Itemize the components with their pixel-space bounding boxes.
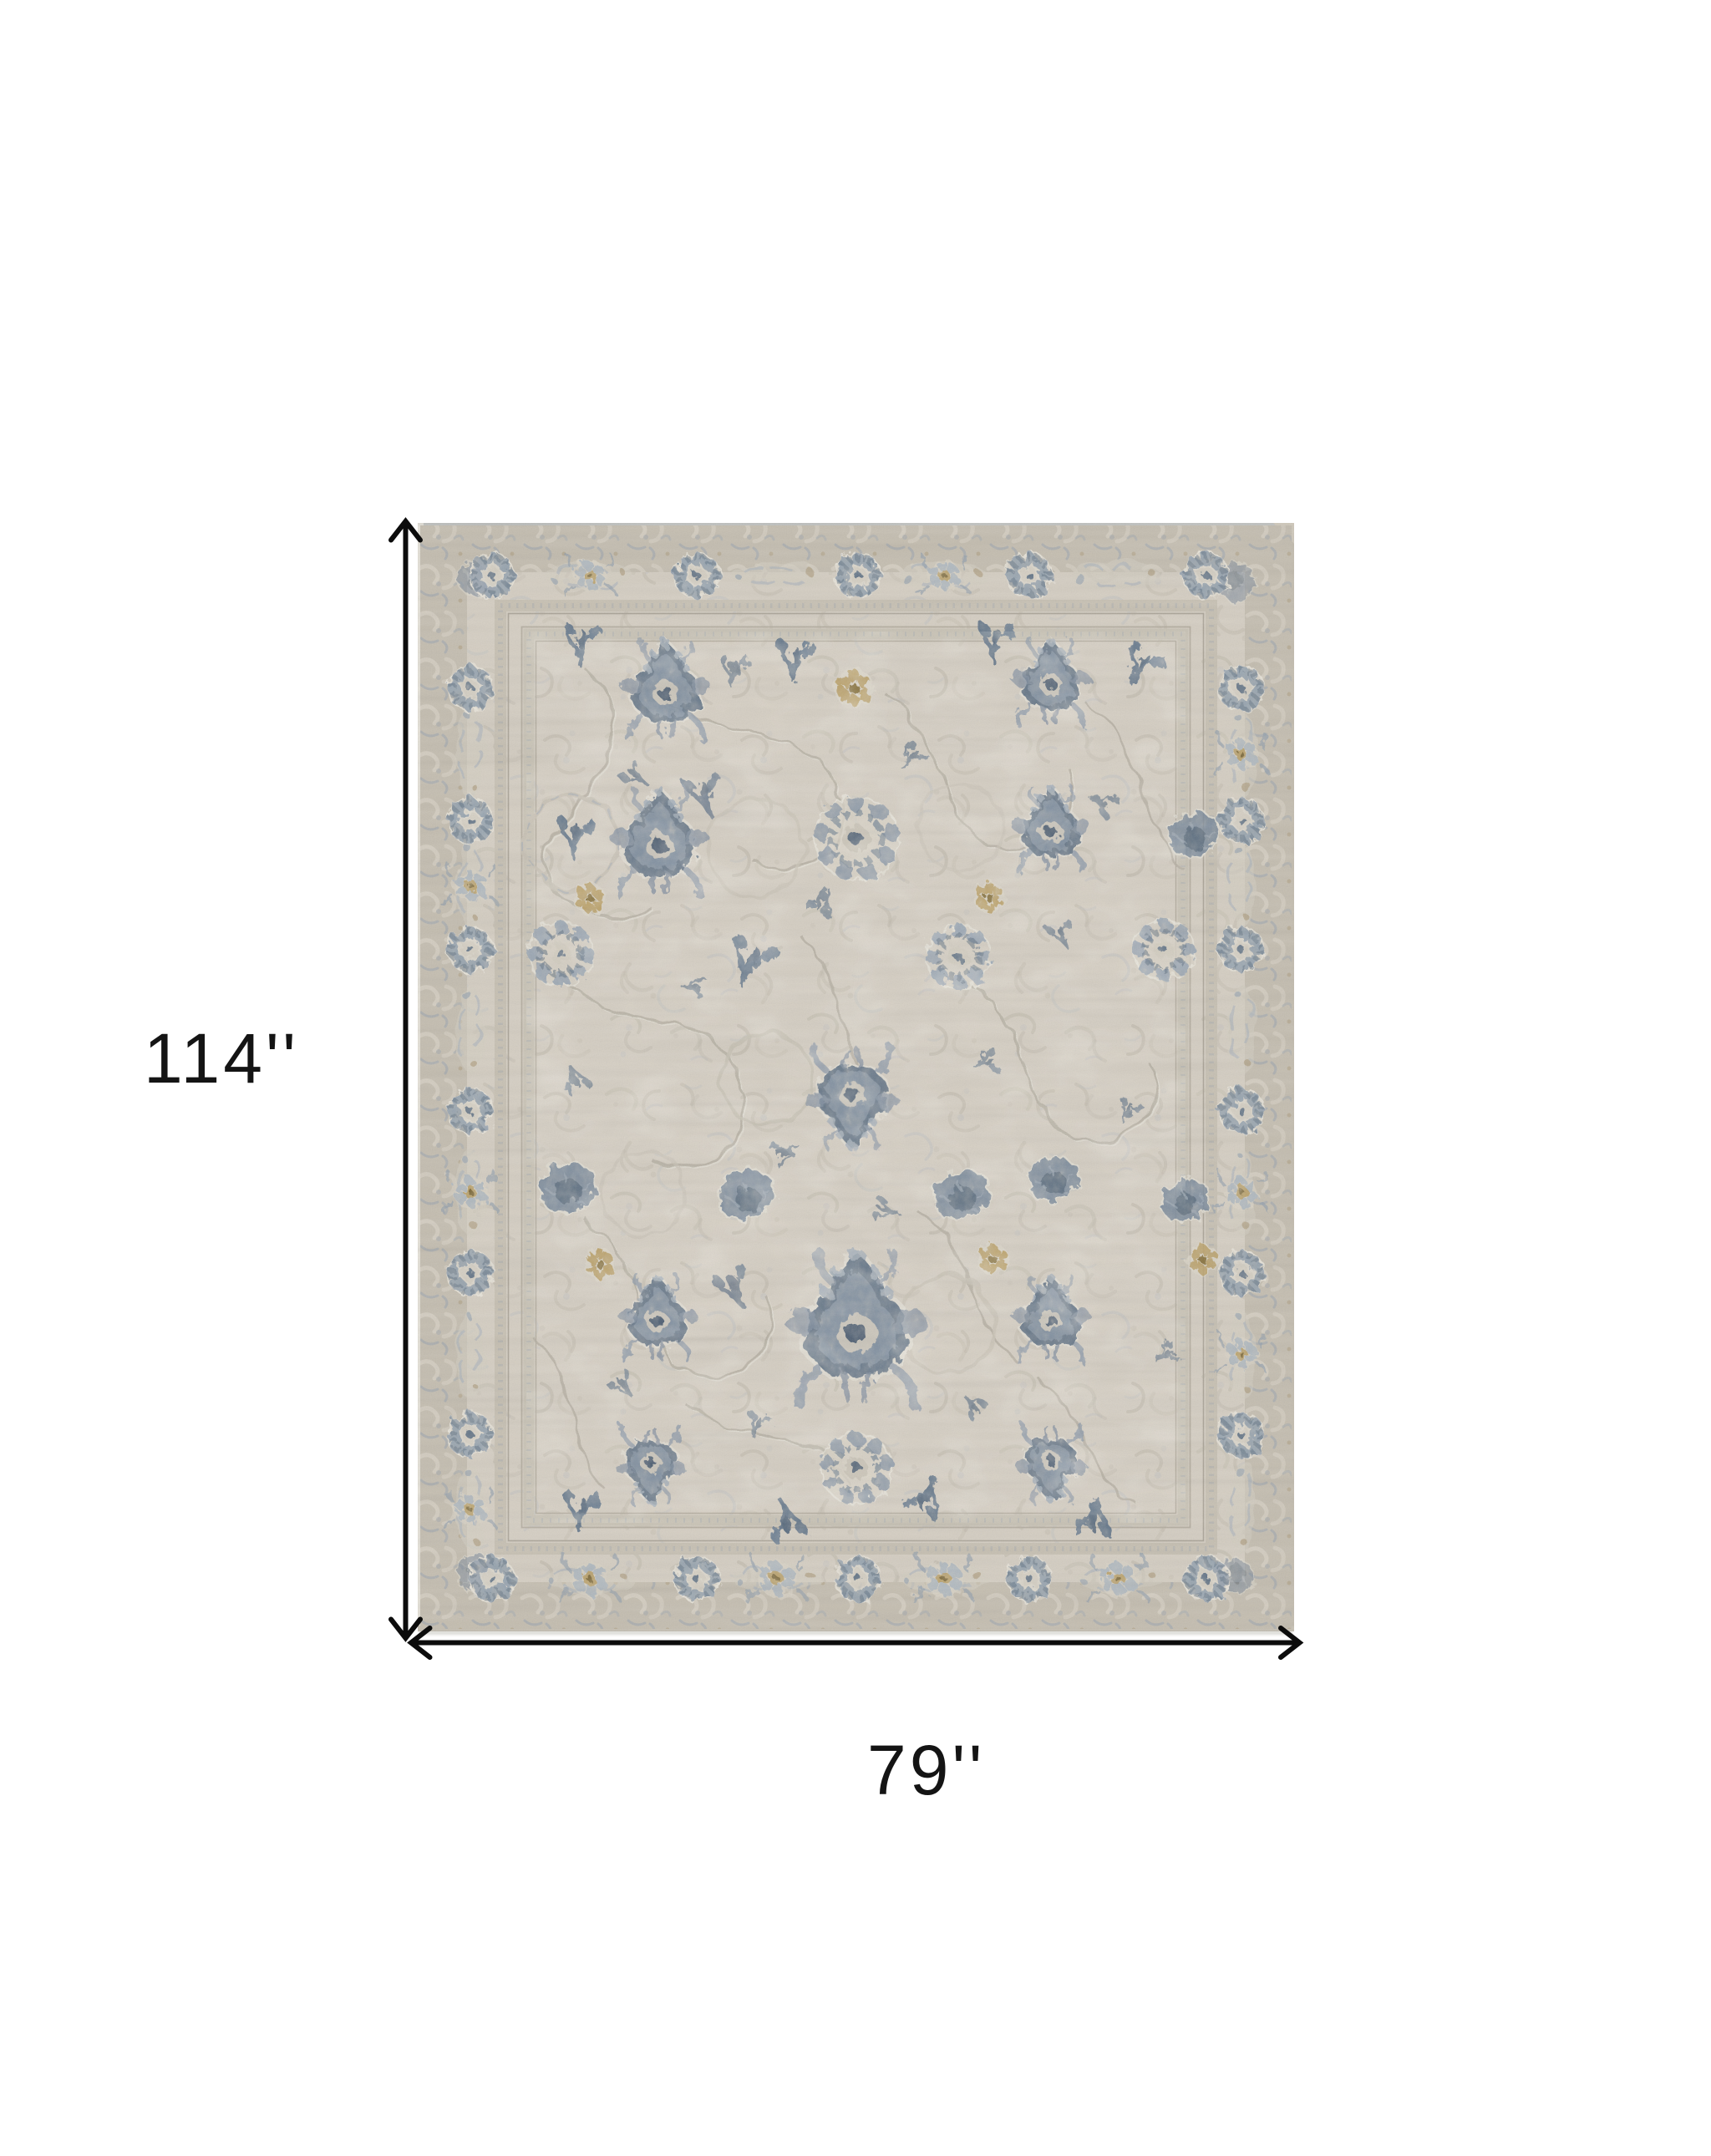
svg-text:79'': 79'' <box>867 1731 986 1809</box>
svg-text:114'': 114'' <box>144 1019 299 1098</box>
